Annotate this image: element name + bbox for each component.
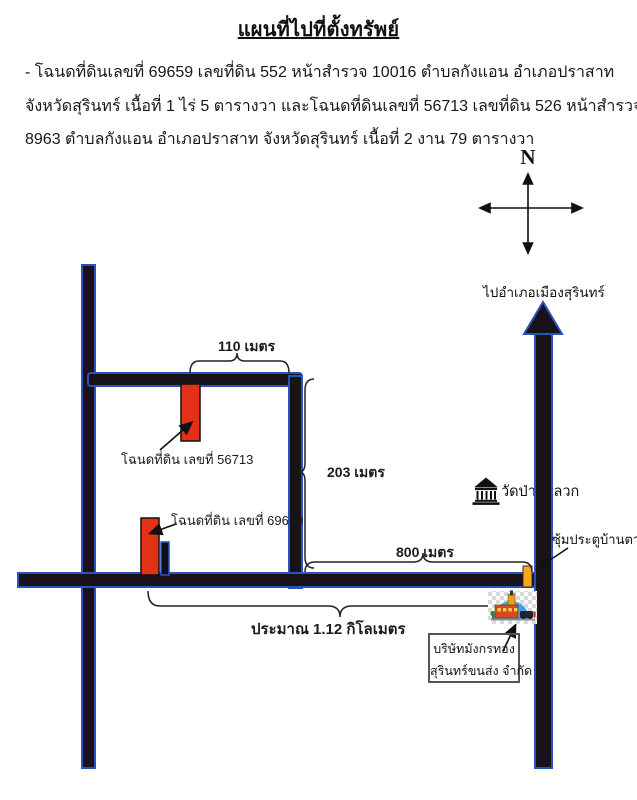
plot-56713-label: โฉนดที่ดิน เลขที่ 56713 <box>121 449 253 470</box>
to-city-label: ไปอำเภอเมืองสุรินทร์ <box>483 281 605 303</box>
plot-56713-shape <box>181 384 200 441</box>
map-canvas <box>0 0 637 800</box>
factory-icon <box>488 591 537 625</box>
distance-110m-label: 110 เมตร <box>218 336 275 358</box>
road-middle-vertical <box>289 376 302 588</box>
company-name-line-2: สุรินทร์ขนส่ง จำกัด <box>430 660 518 682</box>
plot-69659-label: โฉนดที่ดิน เลขที่ 69659 <box>171 510 303 531</box>
distance-total-label: ประมาณ 1.12 กิโลเมตร <box>251 617 406 641</box>
distance-800m-label: 800 เมตร <box>396 542 454 564</box>
map-document-page: แผนที่ไปที่ตั้งทรัพย์ - โฉนดที่ดินเลขที่… <box>0 0 637 800</box>
distance-203m-label: 203 เมตร <box>327 462 385 484</box>
road-main-vertical <box>535 326 552 768</box>
temple-icon <box>473 478 500 505</box>
company-callout-box: บริษัทมังกรทอง สุรินทร์ขนส่ง จำกัด <box>428 633 520 683</box>
gate-label: ซุ้มประตูบ้านตาลวก <box>552 529 637 550</box>
compass-rose-icon <box>480 174 582 253</box>
brace-1.12km <box>148 591 527 617</box>
road-bottom-horizontal <box>18 573 552 587</box>
company-name-line-1: บริษัทมังกรทอง <box>430 638 518 660</box>
plot-69659-shape <box>141 518 159 575</box>
main-road-up-arrow-icon <box>524 302 562 334</box>
small-dark-plot-shape <box>161 542 169 575</box>
village-gate-marker <box>523 566 532 587</box>
road-left-vertical <box>82 265 95 768</box>
land-plots <box>141 384 200 575</box>
